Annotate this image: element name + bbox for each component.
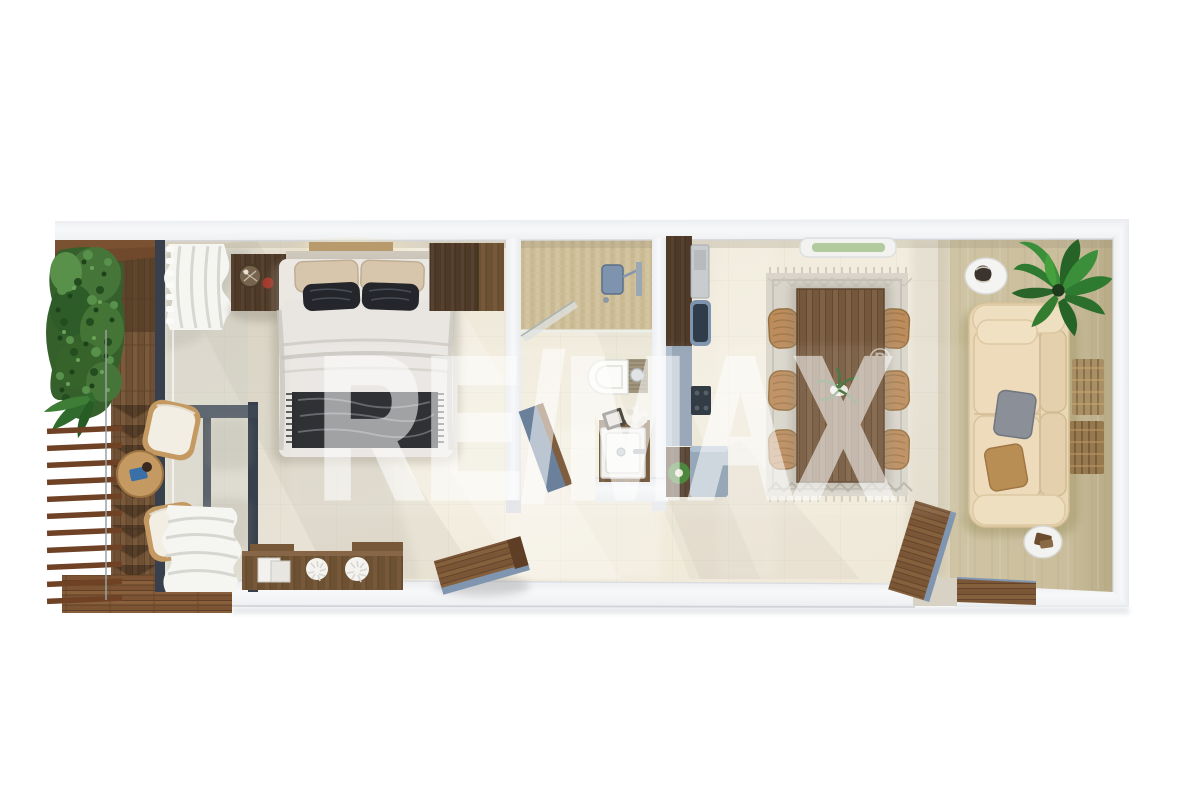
svg-text:RE/MAX: RE/MAX — [317, 317, 893, 540]
svg-text:®: ® — [869, 343, 891, 376]
